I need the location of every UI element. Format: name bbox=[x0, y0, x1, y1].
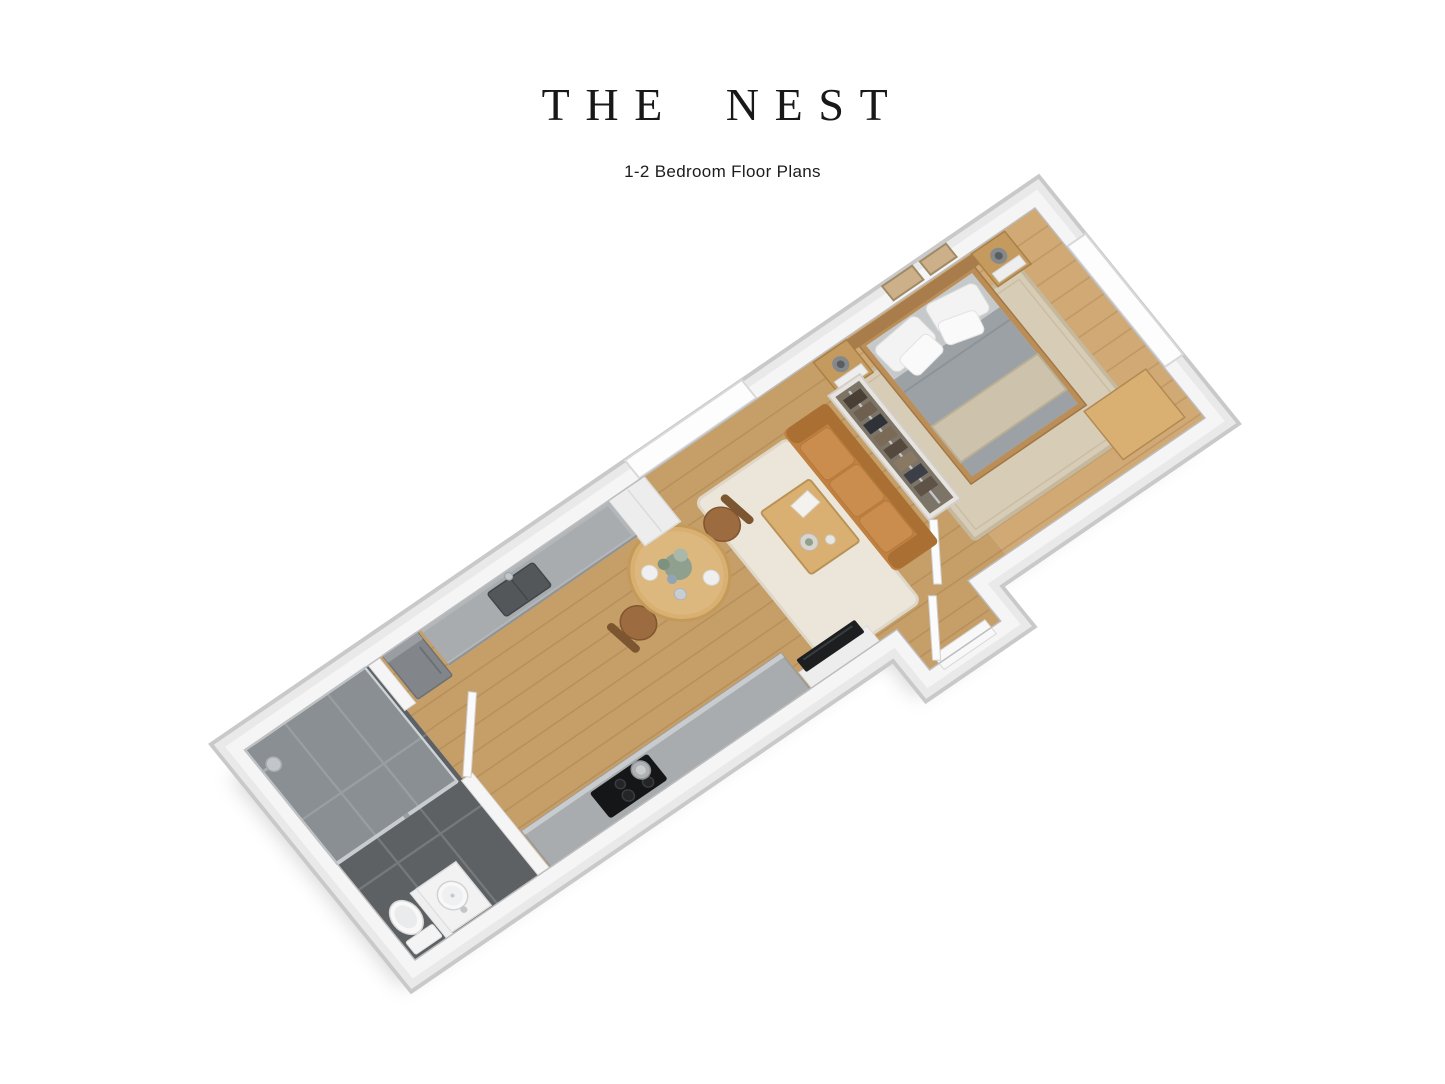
floors bbox=[245, 208, 1238, 1000]
page: { "header": { "title": "THE NEST", "subt… bbox=[0, 0, 1445, 1084]
floor-plan-3d bbox=[0, 0, 1445, 1084]
floor-plan-wrapper bbox=[0, 0, 1445, 1084]
